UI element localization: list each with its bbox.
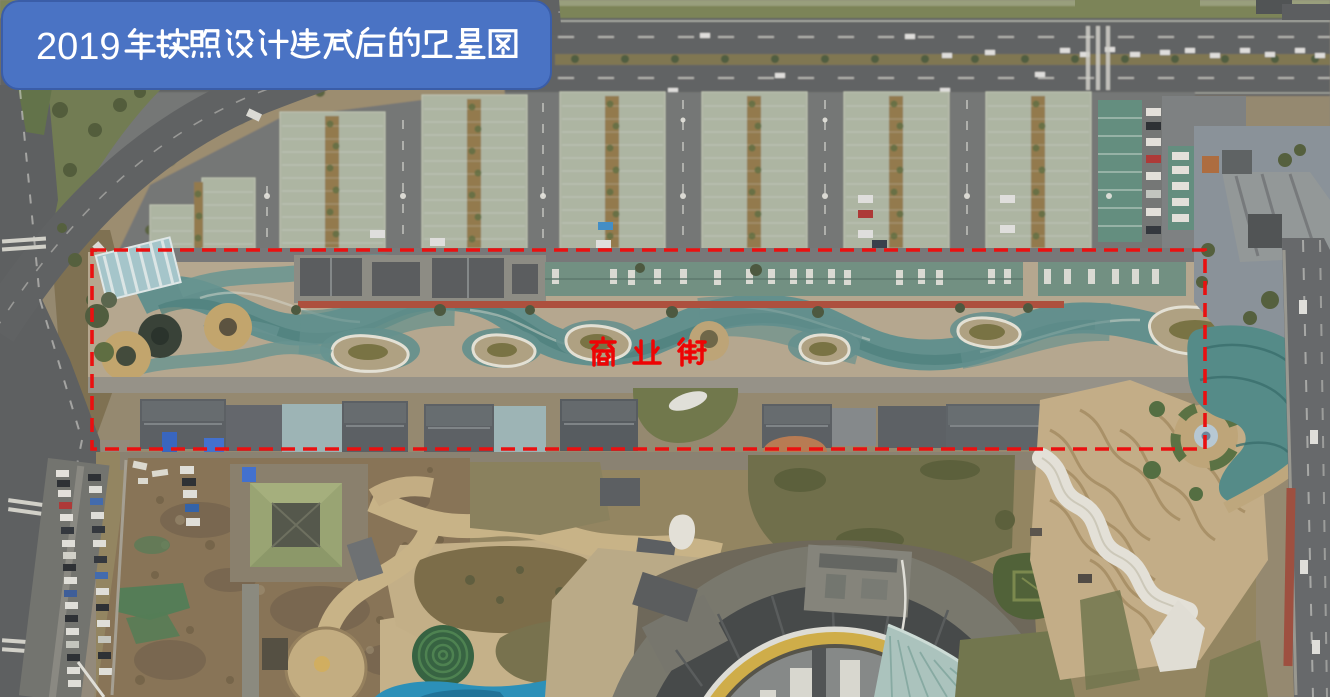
svg-text:2019: 2019 [36, 26, 121, 68]
